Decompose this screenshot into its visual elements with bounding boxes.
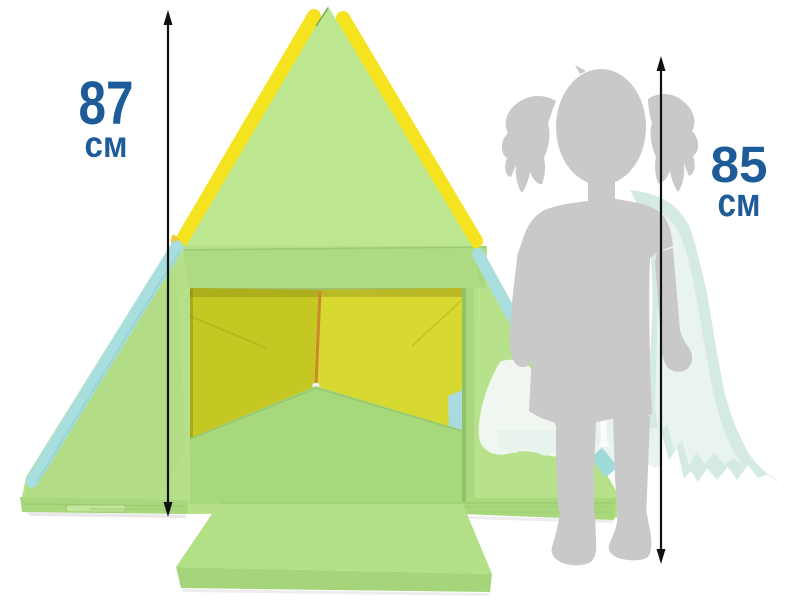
svg-text:см: см — [85, 124, 128, 165]
svg-text:см: см — [718, 181, 761, 225]
